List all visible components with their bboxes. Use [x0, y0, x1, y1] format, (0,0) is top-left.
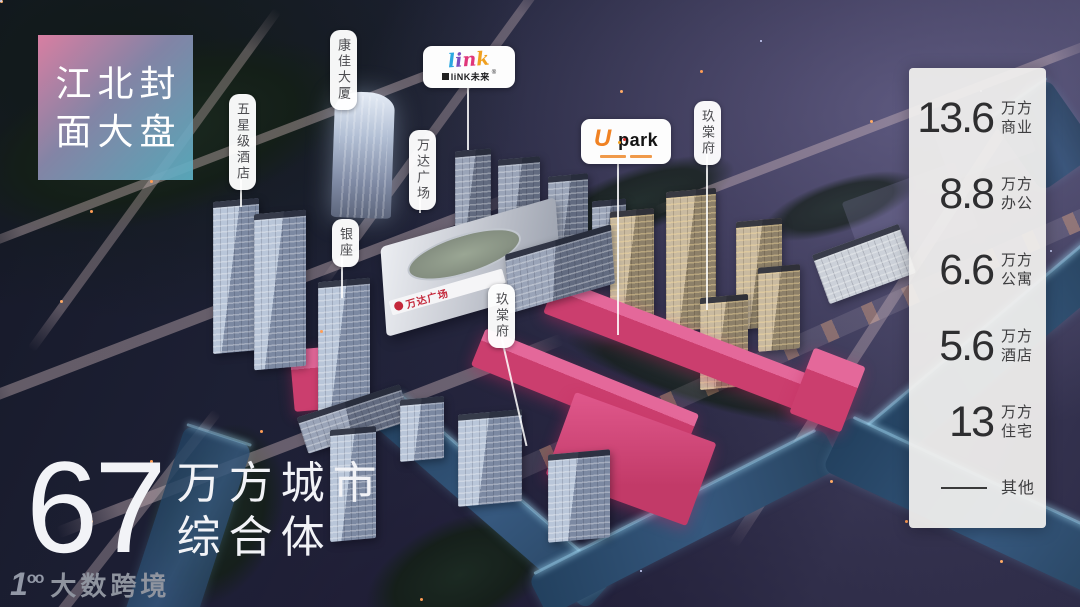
- stat-row-office: 8.8 万方办公: [909, 156, 1046, 232]
- link-square-icon: [442, 73, 449, 80]
- dash-line: [941, 487, 987, 489]
- stat-row-other: 其他: [909, 460, 1046, 516]
- hotel-tower: [213, 198, 259, 354]
- window-lights: [0, 0, 2, 2]
- callout-ginza: 银座: [332, 219, 359, 267]
- leader-line: [706, 150, 708, 310]
- headline-line2: 综合体: [177, 516, 385, 560]
- leader-line: [617, 163, 619, 335]
- residential-tower: [400, 396, 444, 462]
- residential-tower: [548, 449, 610, 542]
- badge-line1: 江北封: [49, 64, 181, 104]
- link-future-logo: link liNK未来 ®: [423, 46, 515, 88]
- stat-value: 5.6: [915, 322, 993, 371]
- watermark-brand: 大数跨境: [50, 566, 170, 603]
- watermark-100-icon: 1oo: [10, 570, 42, 599]
- upark-logo: U park: [581, 119, 671, 164]
- wanda-logo-dot: [393, 300, 404, 311]
- residential-tower: [458, 409, 522, 507]
- stat-value: 13.6: [915, 94, 993, 143]
- residential-tower: [758, 264, 800, 352]
- stat-label: 万方住宅: [1001, 403, 1033, 441]
- stat-label: 万方办公: [1001, 175, 1033, 213]
- stats-panel: 13.6 万方商业 8.8 万方办公 6.6 万方公寓 5.6 万方酒店 13: [909, 68, 1046, 528]
- callout-five-star-hotel: 五星级酒店: [229, 94, 256, 190]
- upark-tagline: [600, 155, 652, 158]
- stat-label: 万方酒店: [1001, 327, 1033, 365]
- headline-line1: 万方城市: [177, 462, 385, 506]
- upark-u-icon: U: [594, 125, 611, 153]
- promo-image: 万达广场 五星级酒店 康佳大厦 银座 万达广场 玖棠府 玖棠府 link: [0, 0, 1080, 607]
- stat-row-apartment: 6.6 万方公寓: [909, 232, 1046, 308]
- watermark: 1oo 大数跨境: [10, 566, 170, 603]
- stat-row-residence: 13 万方住宅: [909, 384, 1046, 460]
- stat-label: 万方公寓: [1001, 251, 1033, 289]
- callout-konka-tower: 康佳大厦: [330, 30, 357, 110]
- stat-label: 万方商业: [1001, 99, 1033, 137]
- stat-value: 6.6: [915, 246, 993, 295]
- stat-value: 13: [915, 398, 993, 447]
- headline-number: 67: [26, 446, 163, 570]
- headline: 67 万方城市 综合体: [26, 446, 385, 570]
- leader-line: [467, 88, 469, 150]
- mall-sign-text: 万达广场: [404, 285, 450, 312]
- stat-value: 8.8: [915, 170, 993, 219]
- stat-row-commercial: 13.6 万方商业: [909, 80, 1046, 156]
- headline-badge: 江北封 面大盘: [38, 35, 193, 180]
- stat-label: 其他: [1001, 479, 1035, 498]
- link-script-logo: link: [448, 50, 491, 70]
- upark-wordmark: U park: [594, 125, 658, 153]
- hotel-tower: [254, 210, 306, 371]
- headline-text: 万方城市 综合体: [177, 446, 385, 570]
- stat-row-hotel: 5.6 万方酒店: [909, 308, 1046, 384]
- badge-line2: 面大盘: [49, 112, 181, 152]
- twisted-tower: [331, 91, 395, 219]
- callout-jiutang-north: 玖棠府: [694, 101, 721, 165]
- callout-jiutang-central: 玖棠府: [488, 284, 515, 348]
- callout-wanda-plaza: 万达广场: [409, 130, 436, 210]
